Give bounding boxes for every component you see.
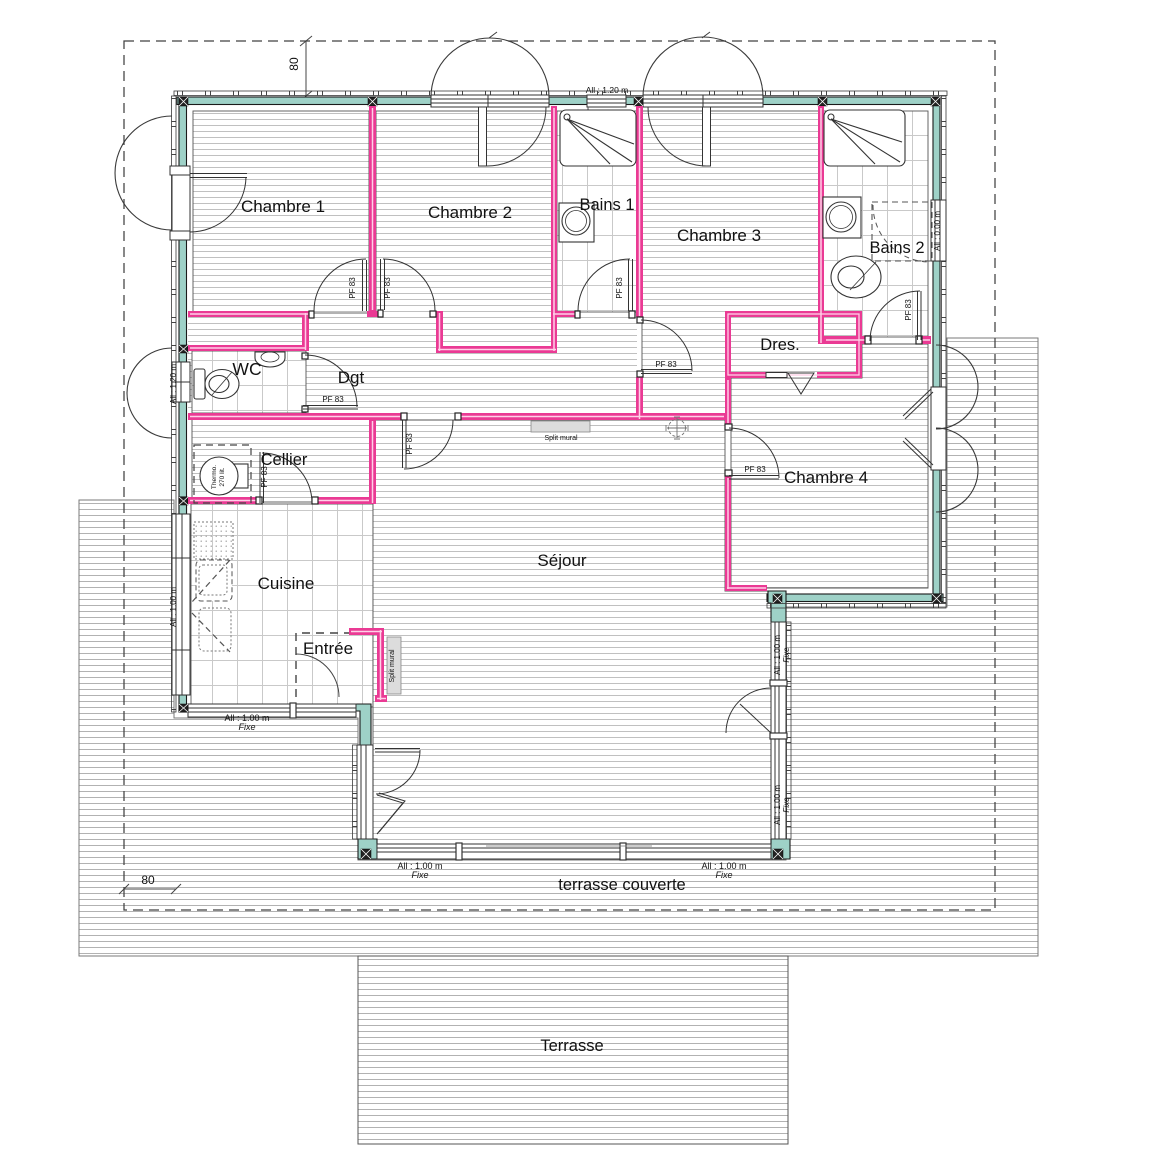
svg-text:Dres.: Dres. [760,336,799,354]
svg-text:80: 80 [287,57,301,71]
svg-text:All : 1.00 m: All : 1.00 m [773,785,782,825]
svg-text:Chambre 3: Chambre 3 [677,226,761,245]
svg-text:Dgt: Dgt [338,368,365,387]
svg-text:PF 83: PF 83 [348,277,357,299]
svg-text:All : 1.00 m: All : 1.00 m [773,635,782,675]
svg-text:Thermo.: Thermo. [211,465,218,489]
svg-text:Fixe: Fixe [411,870,428,880]
svg-text:Split mural: Split mural [389,649,396,683]
svg-text:PF 83: PF 83 [322,395,344,404]
svg-text:Séjour: Séjour [537,551,586,570]
svg-text:Bains 2: Bains 2 [869,239,924,257]
svg-text:All : 1.00 m: All : 1.00 m [169,587,178,627]
svg-text:Chambre 1: Chambre 1 [241,197,325,216]
svg-text:PF 83: PF 83 [904,299,913,321]
svg-text:Bains 1: Bains 1 [579,196,634,214]
svg-text:80: 80 [141,873,155,887]
svg-text:PF 83: PF 83 [615,277,624,299]
svg-text:PF 83: PF 83 [260,466,269,488]
svg-text:All : 0.00 m: All : 0.00 m [933,211,942,251]
svg-text:Cellier: Cellier [261,451,308,469]
svg-text:Fixe: Fixe [238,722,255,732]
svg-text:Entrée: Entrée [303,639,353,658]
svg-text:Chambre 2: Chambre 2 [428,203,512,222]
svg-text:Fixe: Fixe [782,647,791,663]
svg-text:Chambre 4: Chambre 4 [784,468,868,487]
svg-text:terrasse couverte: terrasse couverte [558,876,685,894]
svg-text:All : 1.20 m: All : 1.20 m [169,364,178,404]
svg-text:PF 83: PF 83 [405,433,414,455]
svg-text:Fixe: Fixe [782,797,791,813]
svg-text:Cuisine: Cuisine [258,574,315,593]
svg-text:270 lit.: 270 lit. [219,467,226,486]
svg-text:PF 83: PF 83 [744,465,766,474]
svg-text:PF 83: PF 83 [383,277,392,299]
svg-text:All : 1.20 m: All : 1.20 m [586,85,629,95]
svg-text:Split mural: Split mural [544,435,578,442]
svg-text:PF 83: PF 83 [655,360,677,369]
svg-text:WC: WC [232,359,261,379]
svg-text:Terrasse: Terrasse [540,1037,603,1055]
svg-text:Fixe: Fixe [715,870,732,880]
